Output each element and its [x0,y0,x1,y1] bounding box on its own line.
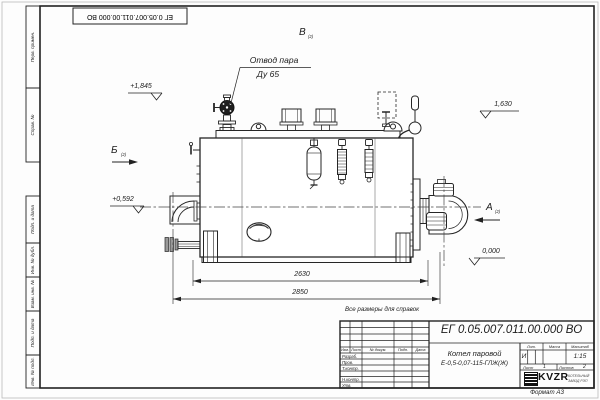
company-line2: ЗАВОД РЭП [568,379,587,383]
elevation-1630: 1,630 [486,101,520,108]
col-header-sign: Подп. [394,348,412,352]
burner-control-box [434,184,454,197]
view-label-b-ref: (2) [121,152,126,157]
elevation-1845: +1,845 [122,83,160,90]
front-fittings [165,142,200,251]
sheets-value: 2 [583,364,586,370]
instrument-dashed-outline [378,92,396,118]
row-tkontr: Т.контр. [342,366,359,371]
elevation-0000: 0,000 [476,248,506,255]
col-header-list: Лист [350,348,362,352]
callout-steam-line2: Ду 65 [236,69,300,79]
top-stamp-text: ЕГ 0.05.007.011.00.000 ВО [73,8,187,24]
dimension-2630: 2630 [288,271,316,278]
lifting-lugs [251,122,402,131]
col-header-doc: № докум. [362,348,394,352]
lit-label: Лит. [520,345,543,349]
mass-label: Масса [543,345,566,349]
top-hatches [280,109,337,131]
margin-cell-podp-data-2: Подп. и дата [26,311,40,355]
row-prov: Пров. [342,360,353,365]
margin-cell-vzam-inv: Взам. инв. № [26,277,40,311]
gauge-cock [412,96,419,110]
sheet-label: Лист [523,365,533,370]
view-label-b: Б [111,145,118,156]
format-note: Формат А3 [500,389,594,396]
scale-label: Масштаб [566,345,594,349]
scale-value: 1:15 [566,353,594,360]
row-utv: Утв. [342,383,352,388]
margin-cell-podp-data-1: Подп. и дата [26,196,40,243]
margin-cell-inv-dubl: Инв. № дубл. [26,243,40,277]
view-b-arrow [129,159,138,165]
product-name-line1: Котел паровой [429,349,520,358]
boiler-body [200,131,413,258]
company-line1: КОТЕЛЬНЫЙ [568,374,589,378]
view-label-a-ref: (2) [495,209,500,214]
doc-number: ЕГ 0.05.007.011.00.000 ВО [429,324,594,336]
margin-cell-perv-primen: Перв. примен. [26,6,40,88]
view-label-a: А [486,202,493,213]
lit-value: И [520,353,528,360]
margin-cell-sprav-no: Справ. № [26,88,40,162]
sheets-label: Листов [559,365,574,370]
margin-cell-inv-podl: Инв. № подл. [26,355,40,388]
col-header-date: Дата [412,348,429,352]
reference-note: Все размеры для справок [345,306,419,313]
view-label-v: В [299,27,306,38]
sheet-value: 1 [543,364,546,370]
view-label-v-ref: (2) [308,34,313,39]
drawing-sheet: ЕГ 0.05.007.011.00.000 ВО Перв. примен. … [0,0,600,400]
row-nkontr: Н.контр. [342,377,360,382]
siphon-loop [409,122,421,134]
col-header-izm: Изм. [340,348,350,352]
product-name-line2: Е-0,5-0,07-115-ГЛЖ(Ж) [429,360,520,367]
lower-nozzle-flange [165,238,169,252]
base-frame [202,257,411,263]
row-razrab: Разраб. [342,354,357,359]
elevation-0592: +0,592 [104,196,142,203]
kvzr-logo-text: KVZR [538,371,569,383]
dimension-2850: 2850 [286,289,314,296]
kvzr-logo-icon [524,372,538,386]
callout-steam-line1: Отвод пара [236,55,312,65]
view-a-arrow [474,217,483,223]
